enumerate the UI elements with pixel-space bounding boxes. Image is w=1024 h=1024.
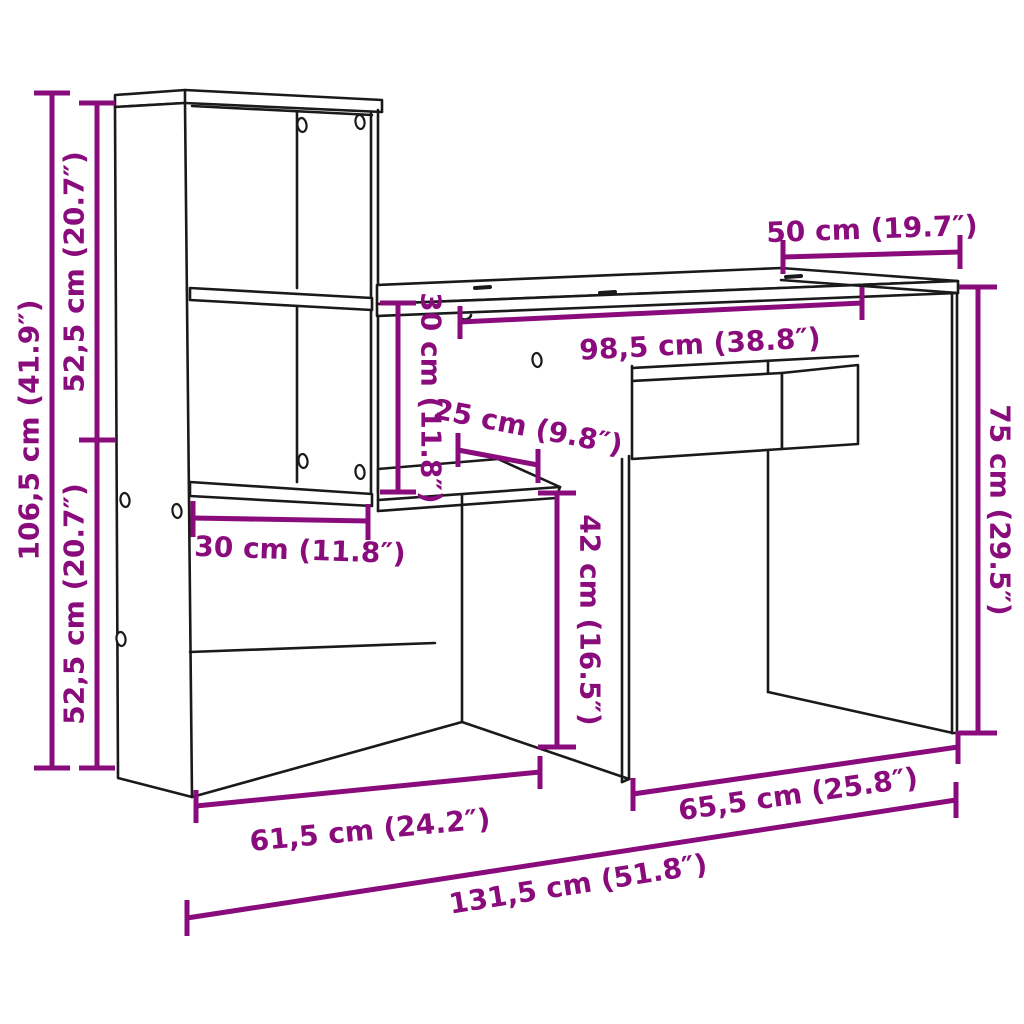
junction-shelf	[378, 459, 560, 511]
dim-under-shelf-clearance: 42 cm (16.5″)	[538, 493, 607, 747]
desktop-screw-mark	[475, 287, 490, 288]
dim-label-total-height: 106,5 cm (41.9″)	[13, 299, 46, 560]
dim-label-shelf-depth: 30 cm (11.8″)	[194, 530, 406, 570]
desktop-screw-mark	[786, 276, 801, 277]
screw-hole	[355, 114, 366, 129]
drawer-unit	[632, 356, 858, 459]
drawer-front	[632, 373, 782, 459]
dim-desk-height: 75 cm (29.5″)	[959, 287, 1017, 733]
screw-hole	[116, 631, 127, 646]
dim-right-section-width: 65,5 cm (25.8″)	[633, 731, 958, 827]
dim-desktop-depth: 50 cm (19.7″)	[766, 209, 978, 274]
dim-label-desktop-depth: 50 cm (19.7″)	[766, 209, 978, 249]
tower-shelf-desk-level	[190, 482, 372, 506]
furniture-dimension-diagram: 106,5 cm (41.9″) 52,5 cm (20.7″) 52,5 cm…	[0, 0, 1024, 1024]
screw-hole	[298, 453, 309, 468]
back-panel-bottom-edge	[190, 643, 435, 652]
tower-shelf-upper	[190, 288, 372, 310]
drawer-side	[782, 365, 858, 449]
shelving-tower	[115, 90, 462, 797]
dim-left-section-width: 61,5 cm (24.2″)	[196, 756, 540, 858]
diagram-canvas: 106,5 cm (41.9″) 52,5 cm (20.7″) 52,5 cm…	[0, 0, 1024, 1024]
screw-hole	[297, 117, 308, 132]
dim-total-width: 131,5 cm (51.8″)	[187, 782, 956, 936]
screw-hole	[172, 503, 183, 518]
dim-label-lower-section-height: 52,5 cm (20.7″)	[58, 483, 91, 725]
screw-hole	[532, 352, 543, 367]
right-side-panel	[768, 290, 957, 733]
dim-label-left-section-width: 61,5 cm (24.2″)	[248, 802, 492, 858]
screw-hole	[355, 464, 366, 479]
dim-shelf-depth: 30 cm (11.8″)	[193, 501, 406, 570]
screw-hole	[120, 492, 131, 507]
dim-upper-section-height: 52,5 cm (20.7″) 52,5 cm (20.7″)	[58, 103, 116, 768]
desktop-screw-mark	[600, 292, 615, 293]
dim-label-under-shelf-clearance: 42 cm (16.5″)	[574, 514, 607, 725]
dim-label-upper-section-height: 52,5 cm (20.7″)	[58, 151, 91, 393]
dim-label-desk-height: 75 cm (29.5″)	[984, 404, 1017, 615]
tower-left-side-panel	[115, 103, 192, 797]
